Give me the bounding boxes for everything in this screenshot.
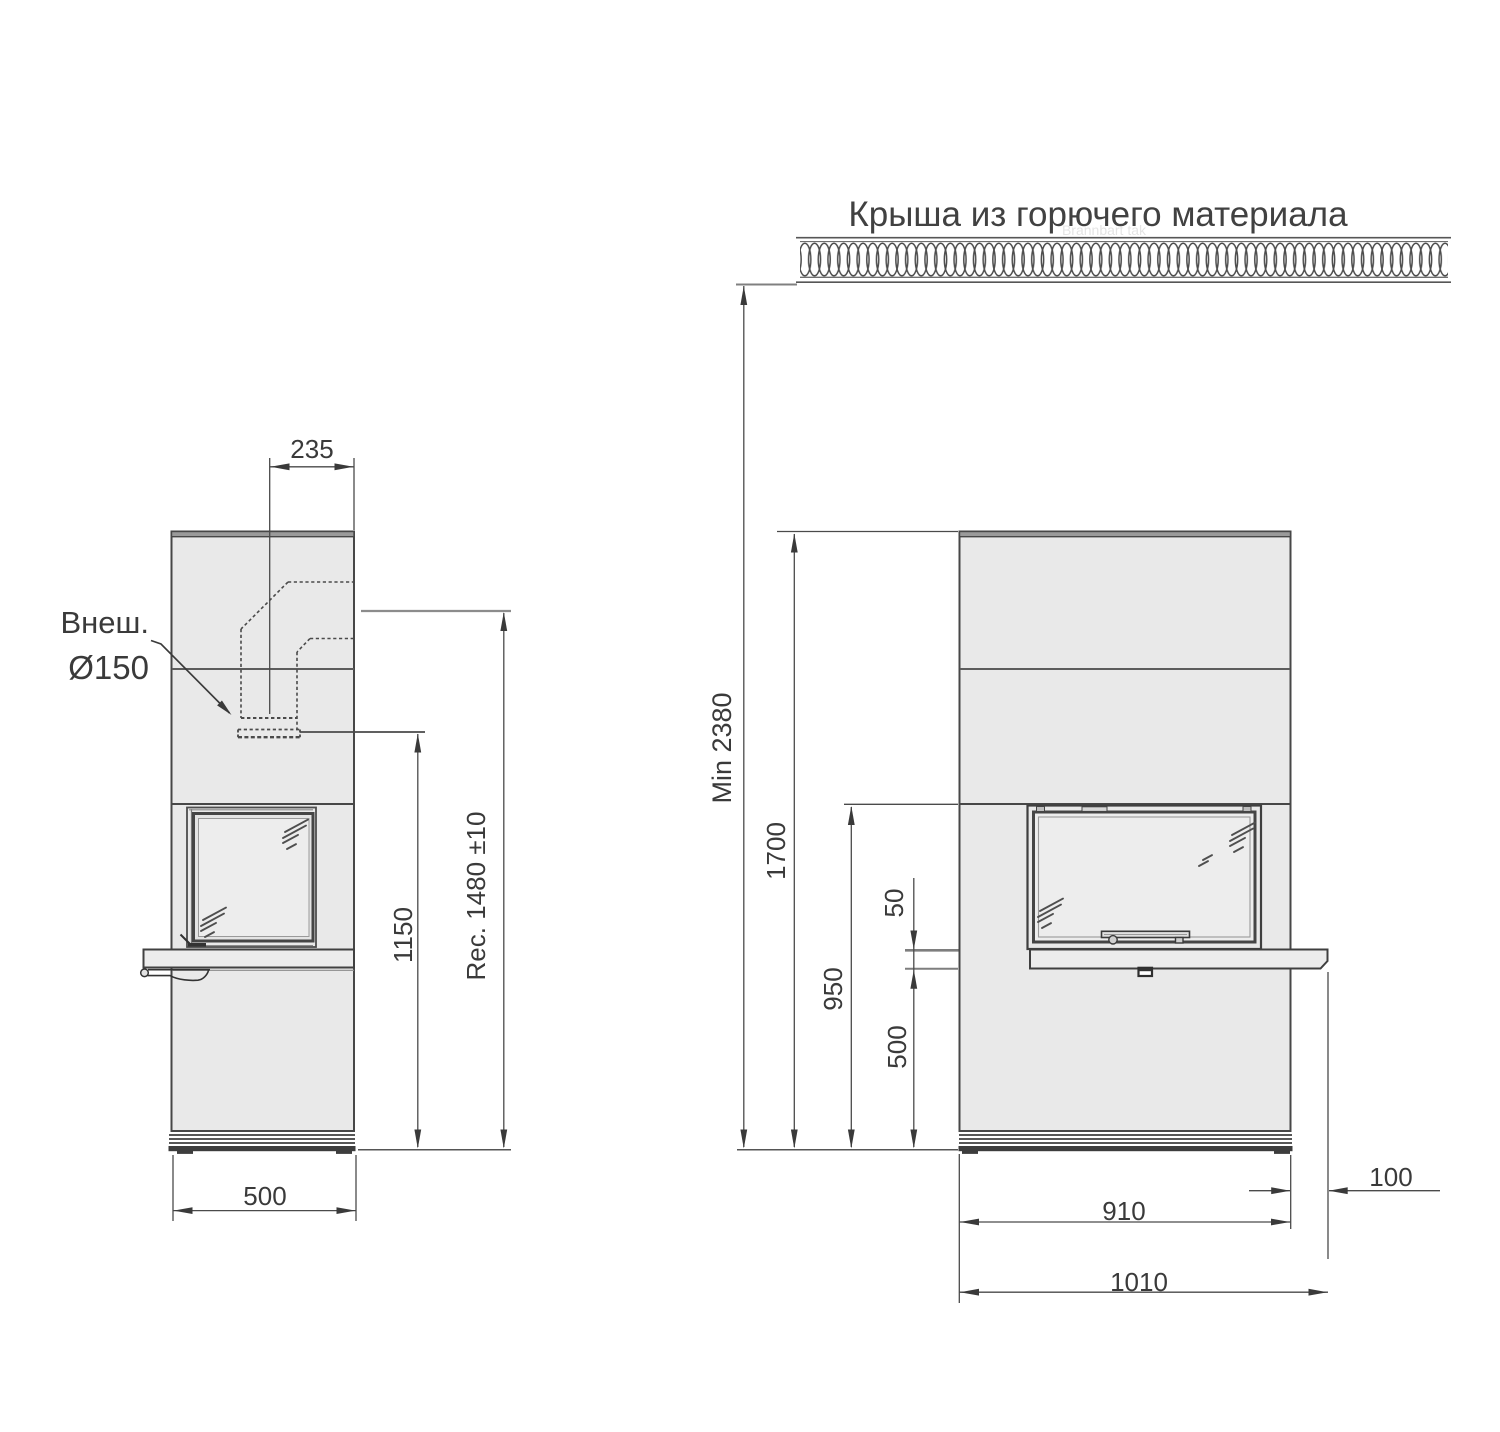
svg-text:Rec. 1480 ±10: Rec. 1480 ±10 [461, 812, 491, 981]
svg-text:100: 100 [1369, 1162, 1412, 1192]
svg-text:910: 910 [1102, 1196, 1145, 1226]
svg-text:500: 500 [882, 1025, 912, 1068]
svg-text:950: 950 [818, 967, 848, 1010]
svg-text:Ø150: Ø150 [68, 649, 149, 686]
svg-text:Внеш.: Внеш. [60, 605, 149, 640]
svg-text:Min 2380: Min 2380 [707, 692, 737, 803]
svg-text:1010: 1010 [1110, 1267, 1168, 1297]
svg-text:50: 50 [879, 889, 909, 918]
svg-text:Brannbart tak: Brannbart tak [1062, 222, 1147, 238]
svg-text:1700: 1700 [761, 822, 791, 880]
svg-text:1150: 1150 [388, 907, 418, 963]
svg-text:235: 235 [290, 434, 333, 464]
svg-text:500: 500 [243, 1181, 286, 1211]
